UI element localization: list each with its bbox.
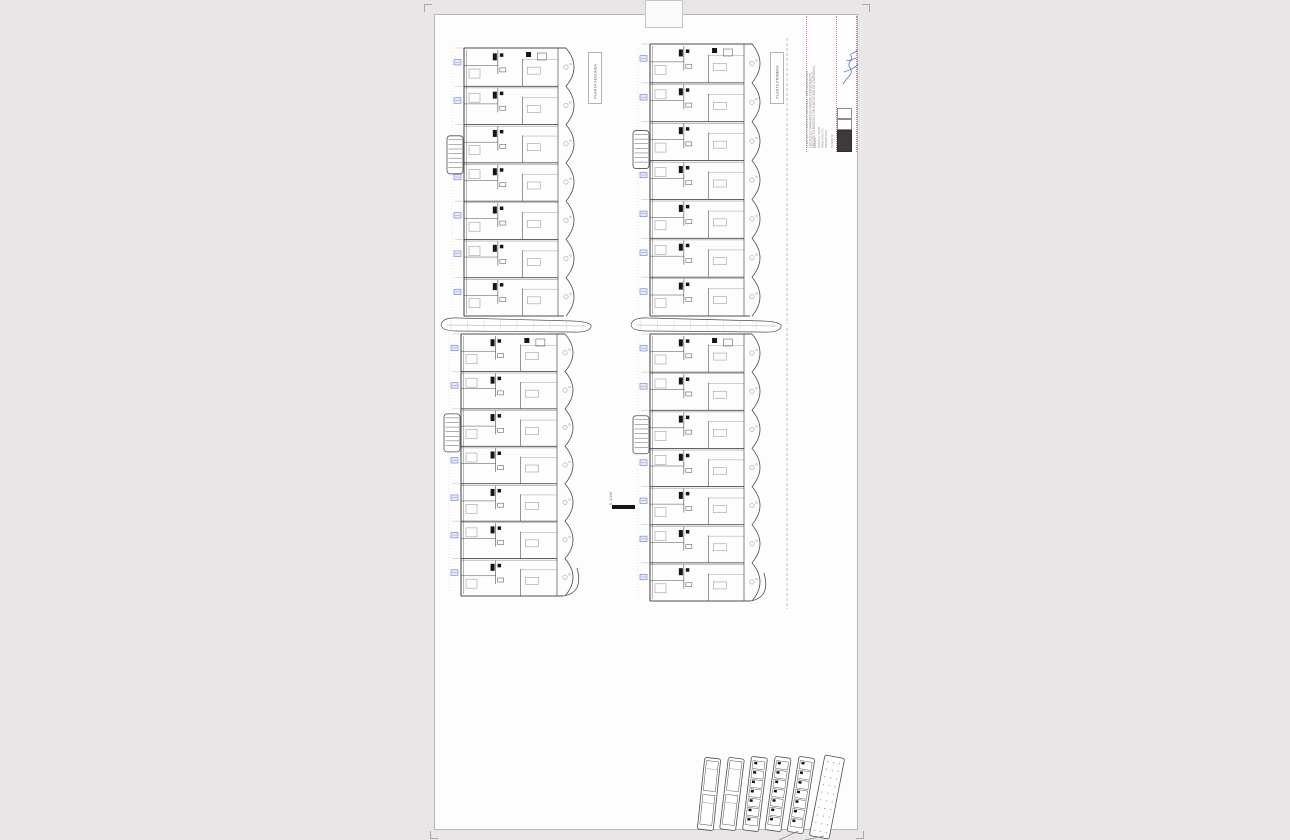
sheet-top-tab [645, 0, 683, 28]
svg-text:E: 1/100: E: 1/100 [609, 492, 613, 505]
key-plan-strip [697, 757, 720, 830]
plan-label-planta-primera: PLANTA PRIMERA [770, 52, 784, 104]
title-block-line: PROYECTO BASICO Y DE EJECUCION DE VIVIEN… [812, 66, 816, 148]
floor-plan-drawing [632, 38, 790, 324]
floor-plan-bottom-left [443, 328, 603, 604]
title-block-line: PLANTAS PRIMERA Y SEGUNDA - INSTALACIONE… [806, 71, 809, 148]
crop-mark-top-left [424, 4, 432, 12]
title-block-line: ARQUITECTO: [820, 127, 824, 148]
title-block-line: FECHA: [813, 137, 817, 148]
floor-plan-top-left [446, 42, 604, 324]
section-strip-drawing [437, 313, 597, 337]
key-plan-strip [765, 756, 791, 832]
key-plan-strip [720, 757, 745, 830]
stamp-cell [837, 119, 852, 130]
stamp-cell [837, 108, 852, 119]
scale-label: E: 1/100 [604, 472, 616, 506]
floor-plan-bottom-right [632, 328, 790, 609]
title-block-stamp-boxes [837, 108, 852, 164]
section-strip-drawing [627, 313, 787, 337]
crop-mark-bottom-left [430, 831, 438, 839]
title-block: PROYECTO BASICO Y DE EJECUCION DE VIVIEN… [806, 16, 858, 152]
key-plan-strip [809, 755, 844, 839]
svg-text:PLANTA PRIMERA: PLANTA PRIMERA [776, 65, 780, 99]
key-plan-strips [688, 748, 864, 840]
floor-plan-drawing [446, 42, 604, 324]
key-plan-strip [787, 756, 815, 834]
section-strip-left [437, 313, 597, 337]
title-block-line: ESCALA: 1/100 [817, 127, 821, 148]
leader-line [779, 831, 798, 840]
crop-mark-top-right [862, 4, 870, 12]
key-plan-strip [743, 756, 768, 831]
title-block-line: PROMOTOR: [824, 129, 828, 148]
studio-logo [837, 130, 852, 152]
section-strip-right [627, 313, 787, 337]
title-block-line: LOCALES Y GARAJES EN PARCELA RESIDENCIAL [808, 72, 812, 148]
svg-text:PLANTA SEGUNDA: PLANTA SEGUNDA [594, 63, 598, 98]
plan-label-planta-segunda: PLANTA SEGUNDA [588, 52, 602, 104]
floor-plan-drawing [443, 328, 603, 604]
floor-plan-drawing [632, 328, 790, 609]
desktop-canvas: PLANTA SEGUNDA PLANTA PRIMERA PROYECTO B… [0, 0, 1290, 840]
floor-plan-top-right [632, 38, 790, 324]
signature-scribble [840, 46, 860, 92]
title-block-line: PLANO N: [830, 134, 834, 148]
